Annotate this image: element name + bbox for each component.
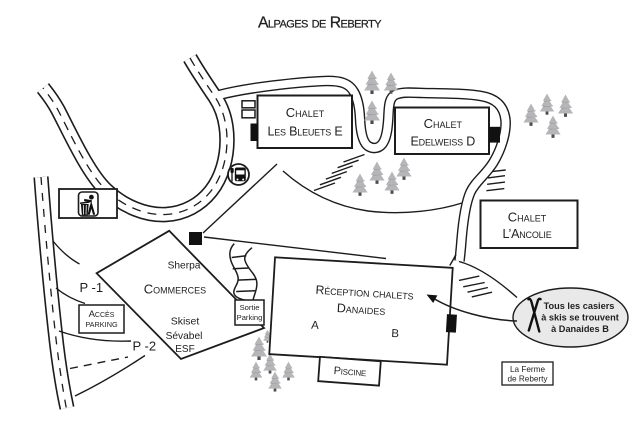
svg-text:Edelweiss D: Edelweiss D [411, 135, 476, 149]
svg-text:Les Bleuets E: Les Bleuets E [268, 125, 343, 139]
svg-text:Alpages de Reberty: Alpages de Reberty [258, 15, 382, 32]
svg-text:Skiset: Skiset [171, 316, 200, 328]
svg-text:Sherpa: Sherpa [168, 261, 201, 272]
svg-text:Tous les casiers: Tous les casiers [544, 301, 615, 311]
svg-text:PARKING: PARKING [85, 320, 118, 329]
svg-text:Chalet: Chalet [424, 116, 463, 131]
svg-text:Parking: Parking [237, 313, 263, 322]
svg-text:Chalet: Chalet [286, 105, 325, 120]
svg-text:Piscine: Piscine [333, 365, 366, 379]
svg-text:B: B [391, 328, 400, 340]
svg-text:Chalet: Chalet [508, 210, 547, 225]
svg-text:à skis se trouvent: à skis se trouvent [541, 313, 619, 323]
svg-text:La Ferme: La Ferme [510, 365, 545, 374]
svg-text:Sévabel: Sévabel [166, 331, 203, 342]
svg-text:Sortie: Sortie [240, 303, 260, 312]
svg-text:à Danaides B: à Danaides B [551, 324, 609, 334]
svg-text:L’Ancolie: L’Ancolie [502, 227, 551, 241]
svg-text:P -1: P -1 [80, 280, 104, 295]
svg-text:Accès: Accès [89, 309, 115, 320]
svg-text:ESF: ESF [175, 344, 194, 355]
svg-text:Commerces: Commerces [144, 282, 206, 297]
svg-text:A: A [311, 320, 320, 332]
svg-text:de Reberty: de Reberty [507, 375, 548, 384]
svg-text:Danaides: Danaides [336, 301, 385, 318]
svg-text:P -2: P -2 [133, 339, 157, 354]
